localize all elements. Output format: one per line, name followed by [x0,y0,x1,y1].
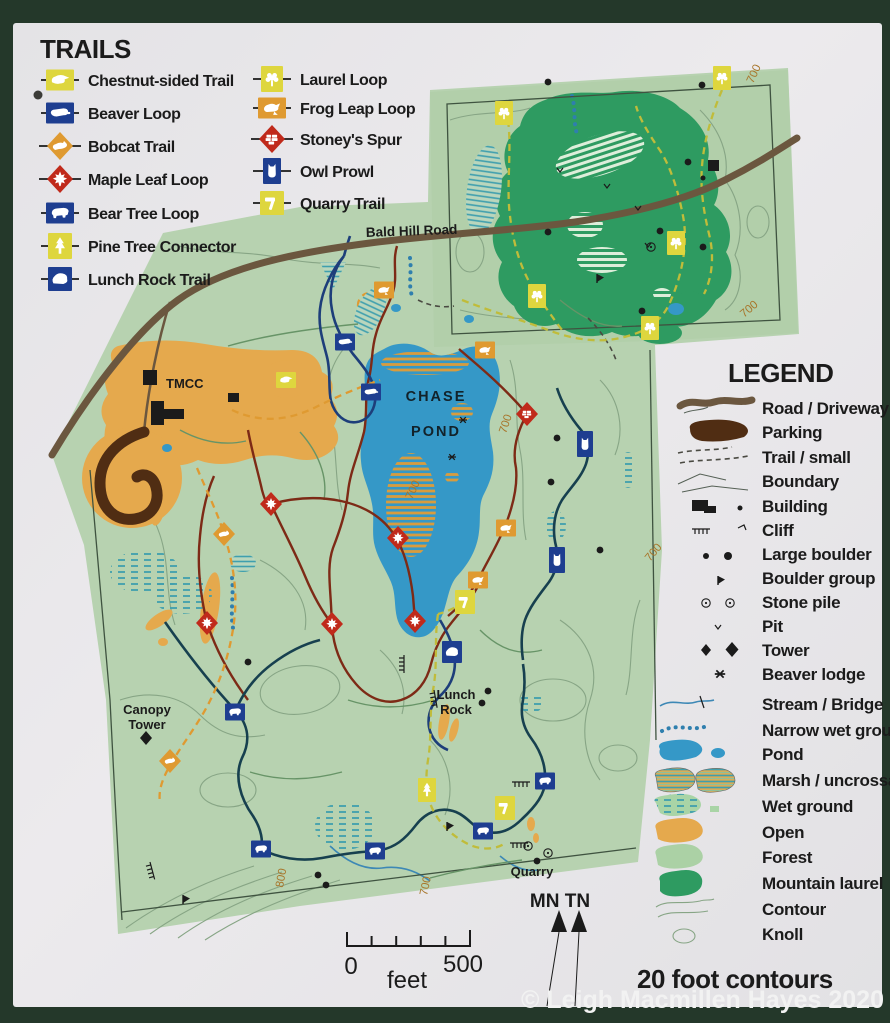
map-marker-frog-leap-loop [468,572,488,589]
trail-map-sign-photo: Bald Hill Road TMCC CHASE POND Canopy To… [0,0,890,1023]
trail-label: Chestnut-sided Trail [88,73,234,90]
map-marker-bear-tree-loop [535,773,555,790]
trail-map-sign: Bald Hill Road TMCC CHASE POND Canopy To… [0,0,890,1023]
compass-label: MN TN [530,891,590,912]
map-marker-bear-tree-loop [225,704,245,721]
trail-label: Lunch Rock Trail [88,272,211,289]
trails-legend-title: TRAILS [40,34,131,64]
map-marker-pine-tree-connector [418,778,436,802]
svg-text:Stone pile: Stone pile [762,593,840,612]
svg-text:Narrow wet ground: Narrow wet ground [762,721,890,740]
map-marker-frog-leap-loop [496,520,516,537]
map-marker-bear-tree-loop [473,823,493,840]
mounting-bolt [34,91,43,100]
lunch-rock-label-line1: Lunch [437,687,476,702]
svg-text:Parking: Parking [762,423,822,442]
tmcc-label: TMCC [166,376,204,391]
map-marker-chestnut-sided-trail [276,372,296,388]
pond-label-line2: POND [411,424,461,440]
map-marker-owl-prowl [549,547,565,573]
scale-unit: feet [387,967,427,994]
map-marker-owl-prowl [577,431,593,457]
map-marker-lunch-rock-trail [442,641,462,663]
svg-text:Pond: Pond [762,745,803,764]
legend-item-mountain-laurel: Mountain laurel [659,870,883,896]
svg-text:Wet ground: Wet ground [762,797,853,816]
svg-text:Marsh / uncrossable: Marsh / uncrossable [762,771,890,790]
map-marker-laurel-loop [667,231,685,255]
map-marker-laurel-loop [495,101,513,125]
map-marker-laurel-loop [528,284,546,308]
svg-text:Large boulder: Large boulder [762,545,872,564]
map-marker-quarry-trail [455,590,475,614]
trails-legend-item-beaver-loop: Beaver Loop [41,103,181,124]
pond-label-line1: CHASE [406,389,467,405]
trails-legend-item-bear-tree-loop: Bear Tree Loop [41,203,200,224]
svg-text:Mountain laurel: Mountain laurel [762,874,883,893]
svg-text:Forest: Forest [762,848,813,867]
map-legend-title: LEGEND [728,358,833,388]
svg-text:Stream / Bridge: Stream / Bridge [762,695,883,714]
trail-label: Bear Tree Loop [88,206,200,223]
svg-text:Trail / small: Trail / small [762,448,851,467]
svg-text:Building: Building [762,497,828,516]
map-marker-laurel-loop [713,66,731,90]
trail-label: Owl Prowl [300,164,374,181]
quarry-label: Quarry [511,864,554,879]
svg-text:Boundary: Boundary [762,472,840,491]
trail-label: Beaver Loop [88,106,181,123]
svg-text:Contour: Contour [762,900,827,919]
canopy-tower-label-line1: Canopy [123,702,171,717]
trails-legend-item-frog-leap-loop: Frog Leap Loop [253,98,416,119]
map-marker-laurel-loop [641,316,659,340]
svg-text:Pit: Pit [762,617,783,636]
svg-text:Road / Driveway: Road / Driveway [762,399,890,418]
trail-label: Stoney's Spur [300,132,402,149]
svg-text:Open: Open [762,823,804,842]
trails-legend-item-chestnut-sided-trail: Chestnut-sided Trail [41,70,234,91]
map-marker-quarry-trail [495,796,515,820]
svg-text:Cliff: Cliff [762,521,794,540]
map-marker-frog-leap-loop [475,342,495,359]
copyright: © Leigh Macmillen Hayes 2020 [521,986,884,1014]
trail-label: Bobcat Trail [88,139,175,156]
svg-text:Tower: Tower [762,641,810,660]
svg-text:Knoll: Knoll [762,925,803,944]
map-marker-beaver-loop [361,384,381,401]
trail-label: Pine Tree Connector [88,239,236,256]
map-marker-bear-tree-loop [251,841,271,858]
svg-text:Boulder group: Boulder group [762,569,875,588]
scale-end: 500 [443,951,483,978]
trail-label: Frog Leap Loop [300,101,416,118]
lunch-rock-label-line2: Rock [440,702,473,717]
road-label: Bald Hill Road [366,222,458,240]
map-marker-frog-leap-loop [374,282,394,299]
trail-label: Maple Leaf Loop [88,172,209,189]
scale-start: 0 [344,953,357,980]
canopy-tower-label-line2: Tower [128,717,165,732]
map-marker-bear-tree-loop [365,843,385,860]
svg-text:Beaver lodge: Beaver lodge [762,665,865,684]
trail-label: Quarry Trail [300,196,385,213]
map-marker-beaver-loop [335,334,355,351]
trail-label: Laurel Loop [300,72,388,89]
